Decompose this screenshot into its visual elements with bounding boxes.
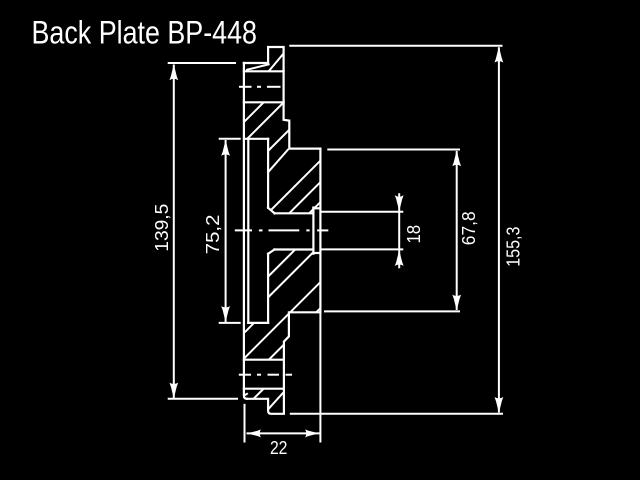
svg-text:67,8: 67,8 — [459, 211, 479, 245]
svg-text:22: 22 — [270, 438, 288, 458]
svg-text:18: 18 — [404, 225, 424, 244]
svg-text:155,3: 155,3 — [504, 227, 524, 267]
svg-text:139,5: 139,5 — [152, 204, 172, 252]
svg-text:75,2: 75,2 — [203, 215, 223, 255]
svg-text:Back Plate BP-448: Back Plate BP-448 — [32, 15, 258, 51]
